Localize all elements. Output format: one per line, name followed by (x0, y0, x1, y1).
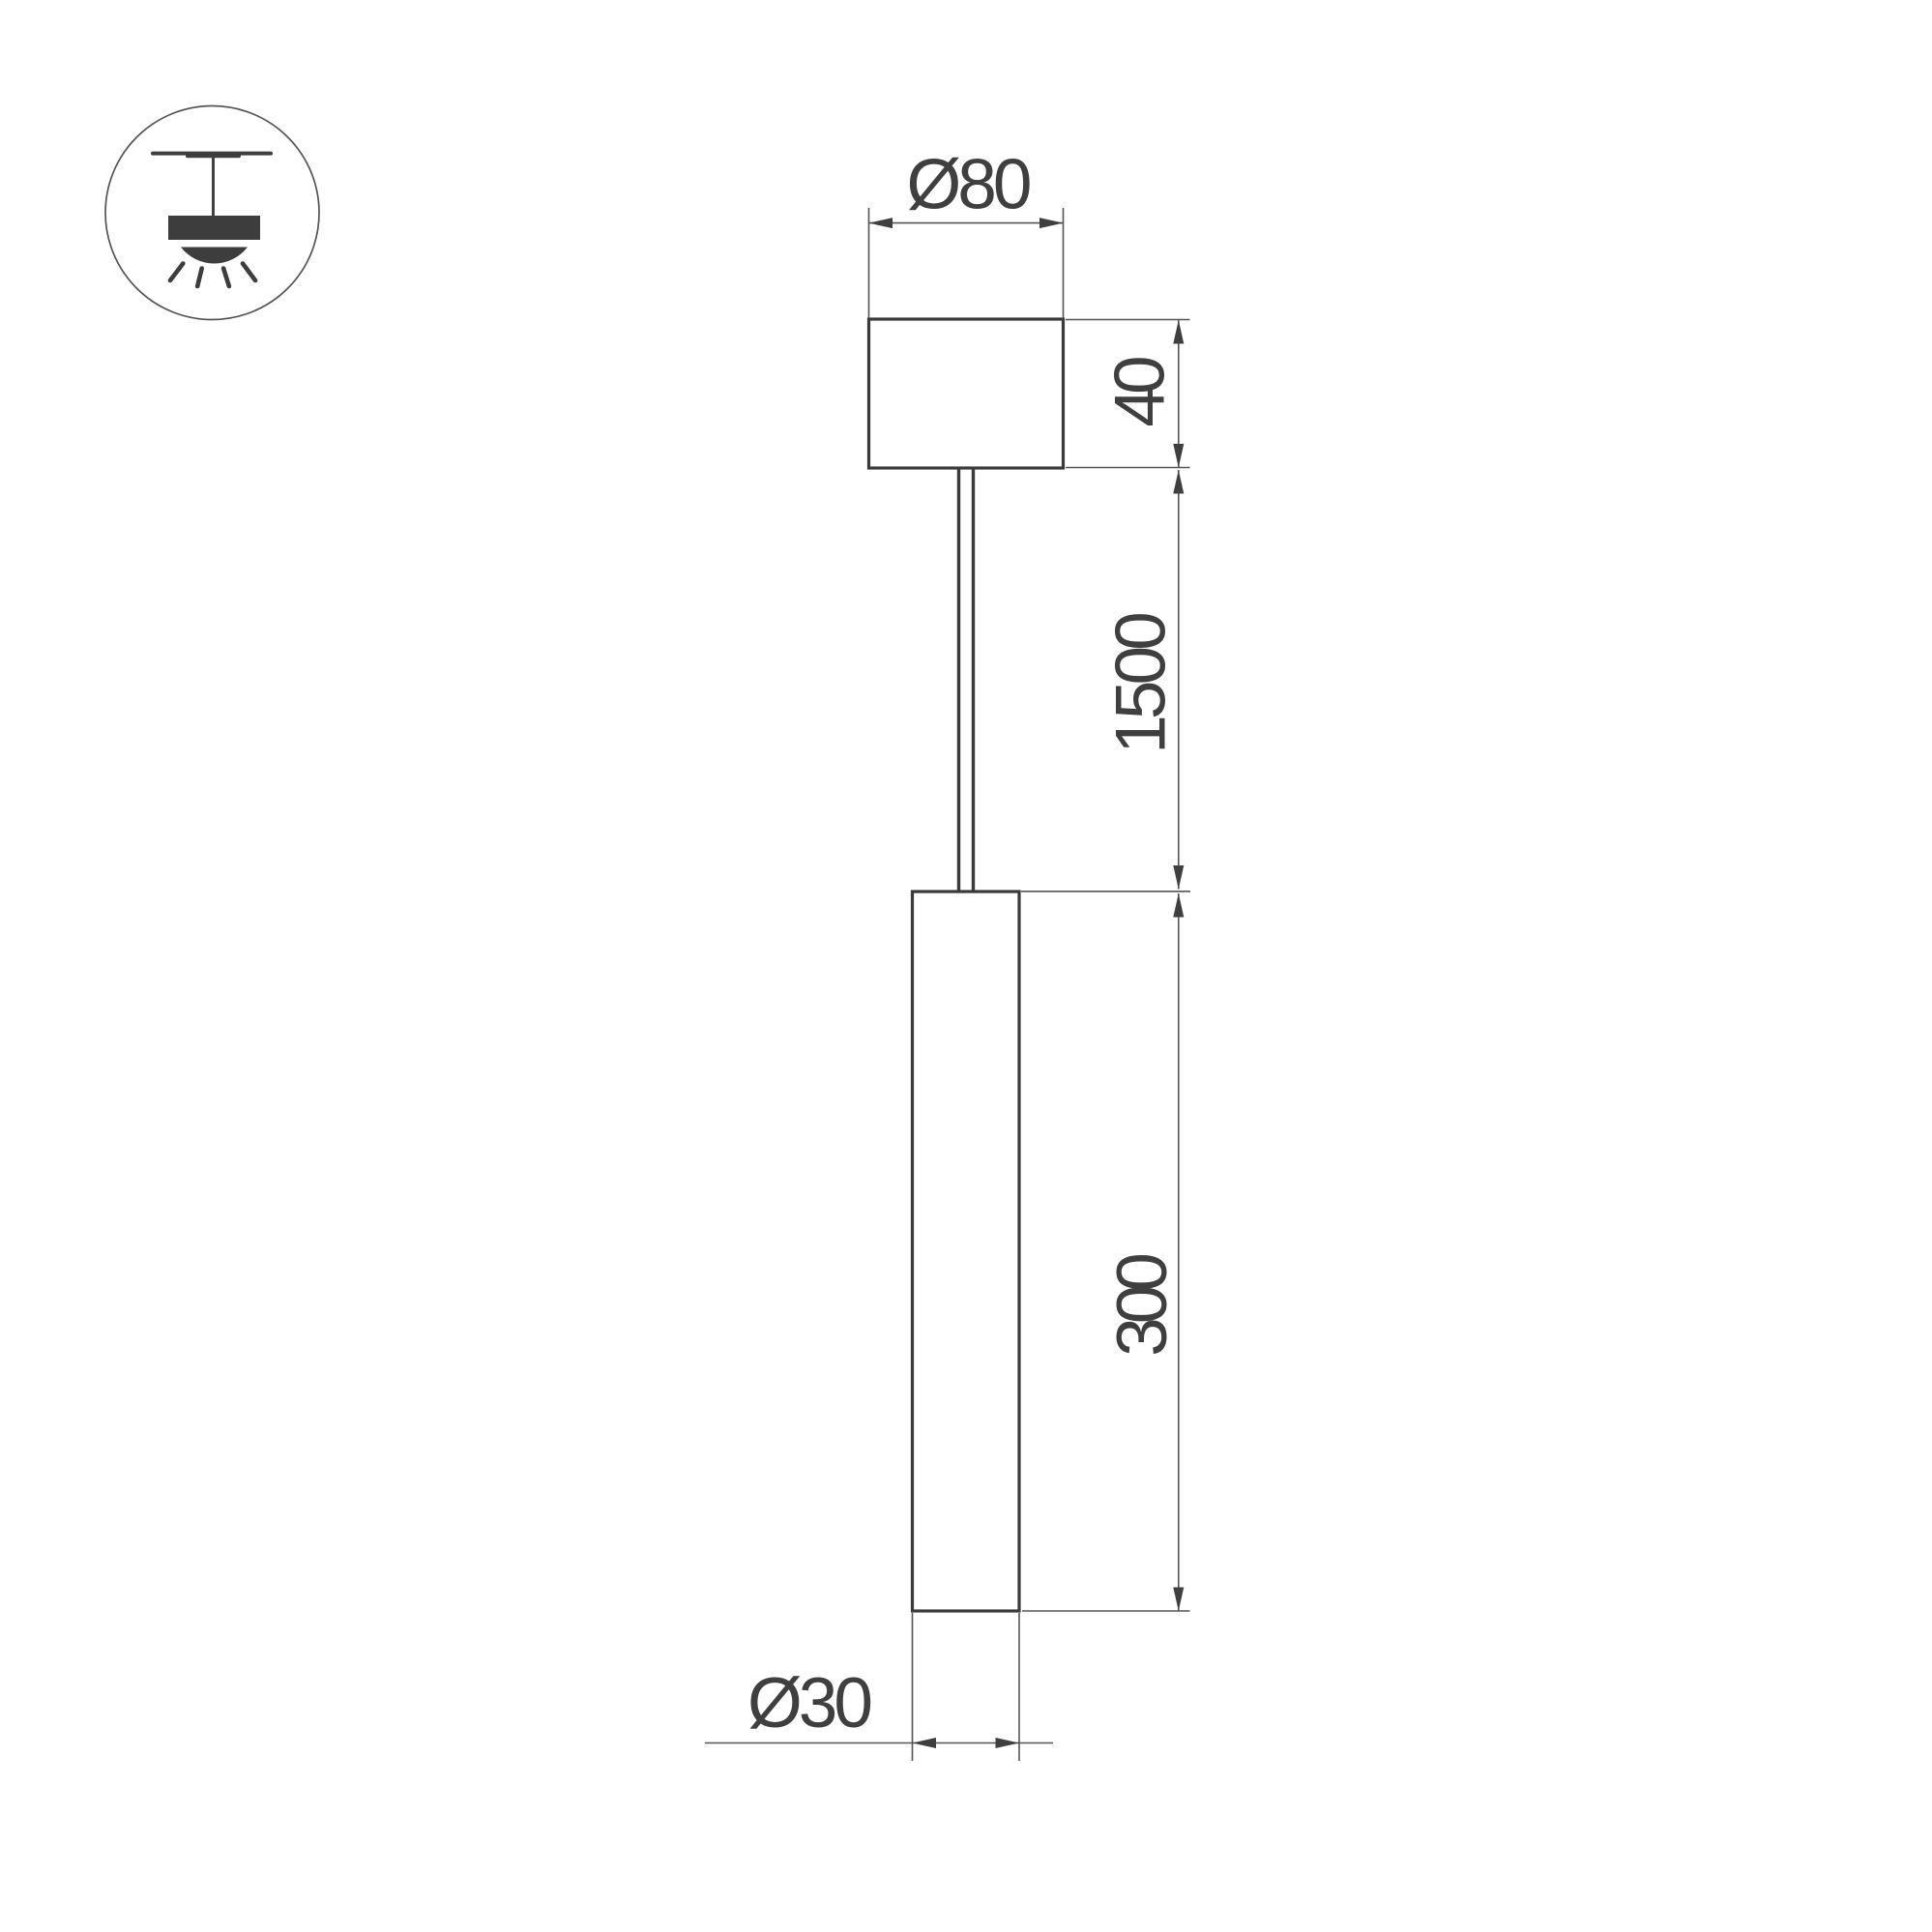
svg-text:1500: 1500 (1102, 614, 1181, 754)
svg-text:300: 300 (1103, 1255, 1182, 1357)
svg-text:Ø80: Ø80 (907, 146, 1030, 224)
svg-text:Ø30: Ø30 (747, 1664, 870, 1742)
svg-text:40: 40 (1101, 358, 1180, 427)
